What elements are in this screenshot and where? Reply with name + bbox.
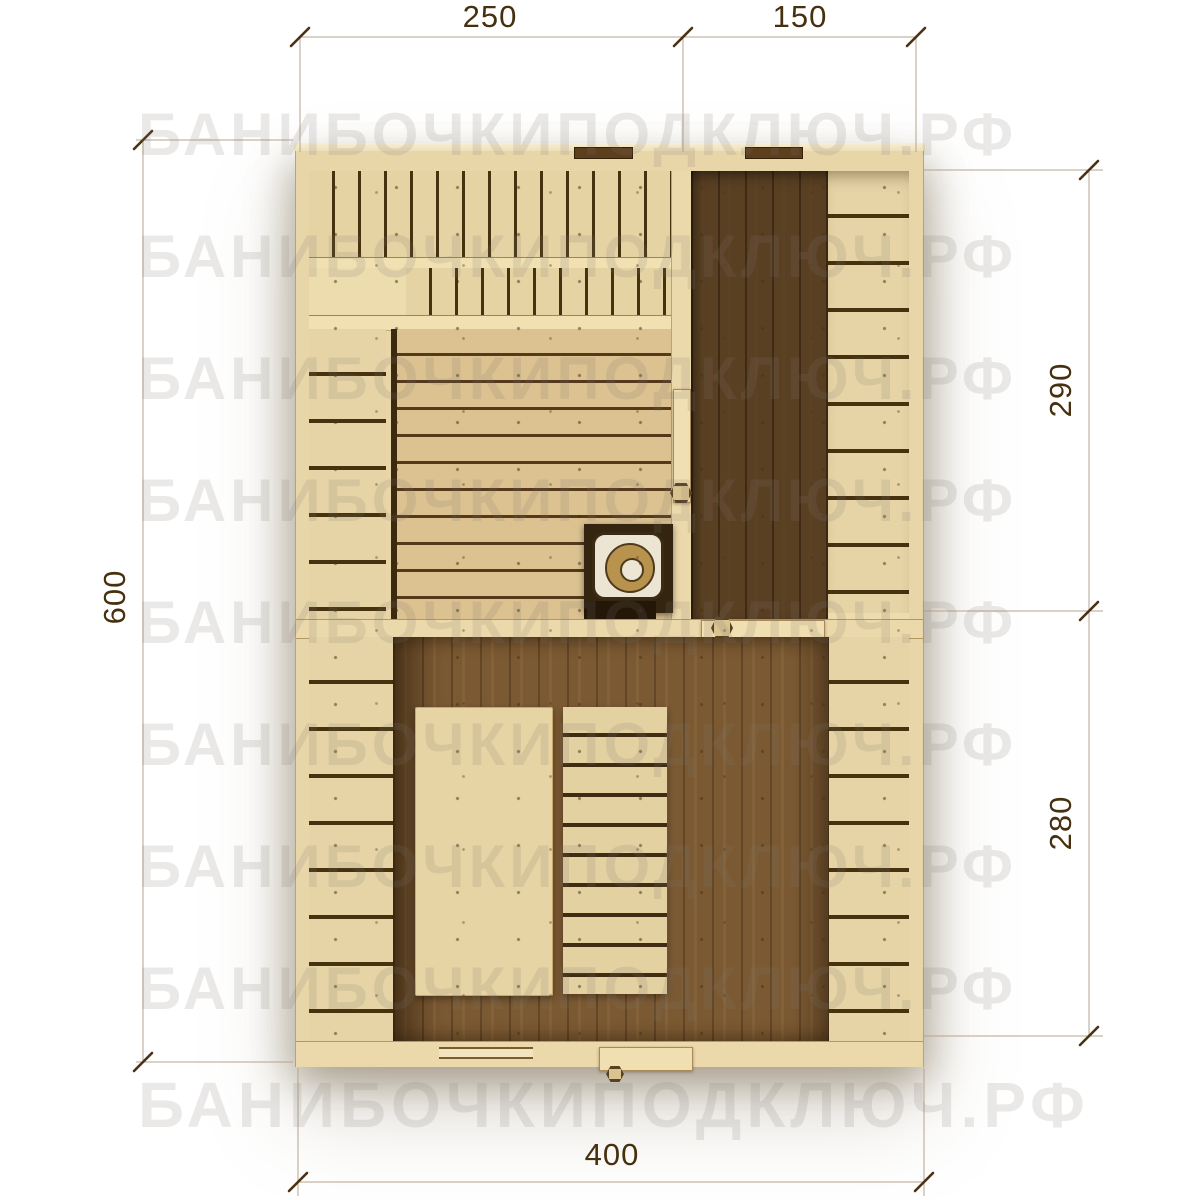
dimension-label-600: 600 [97,570,132,625]
dimension-label-250: 250 [463,0,518,34]
dimension-label-400: 400 [585,1137,640,1172]
dimension-label-280: 280 [1043,796,1078,851]
dimension-label-150: 150 [773,0,828,34]
sauna-plan-page: 250 150 290 280 600 400 БАНИБОЧКИПОДКЛЮЧ… [0,0,1200,1200]
dimension-annotations: 250 150 290 280 600 400 [0,0,1200,1200]
dimension-label-290: 290 [1043,363,1078,418]
